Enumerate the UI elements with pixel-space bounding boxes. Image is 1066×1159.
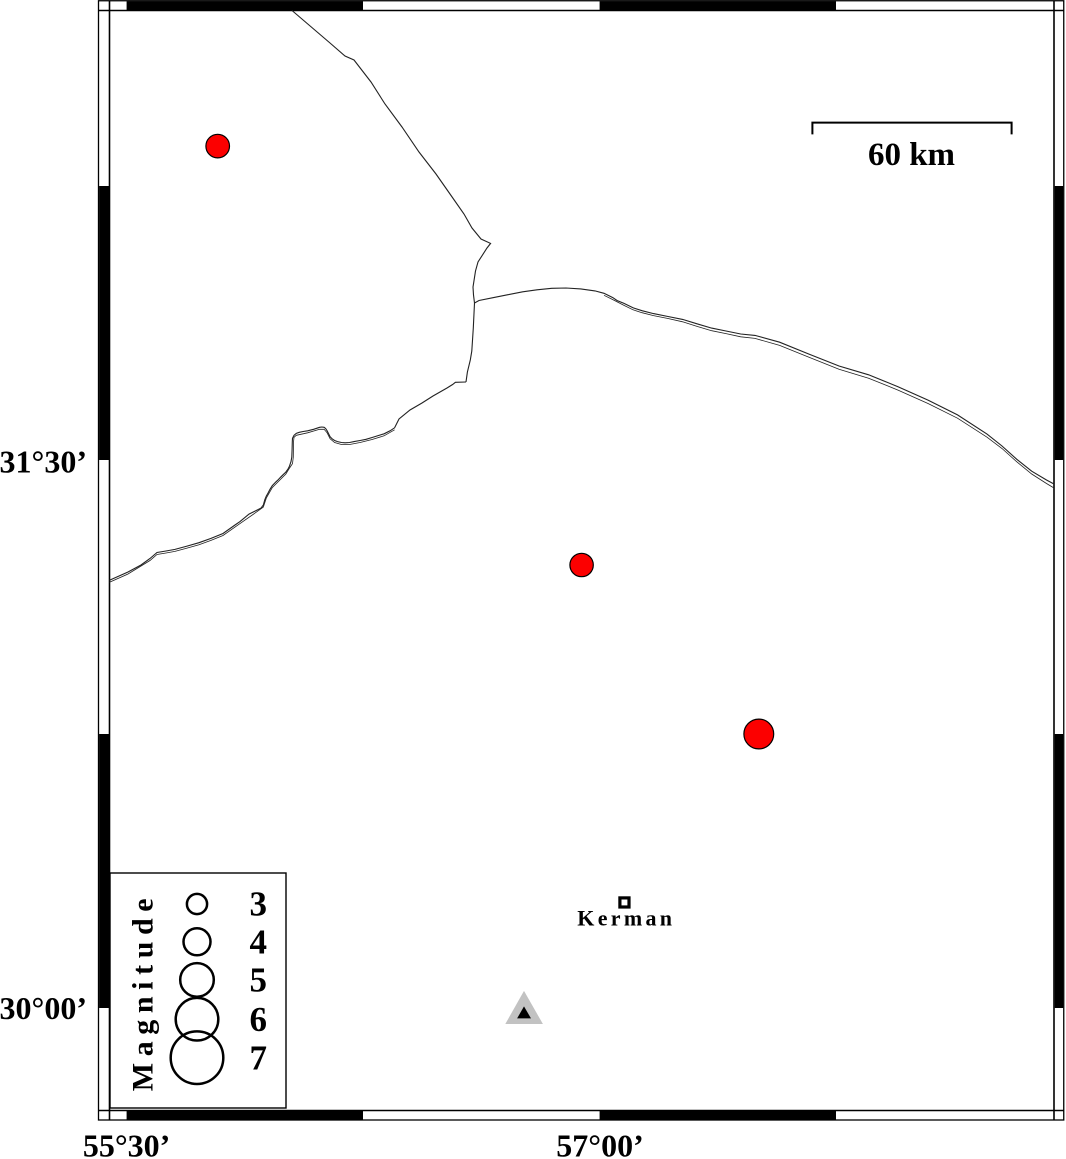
svg-text:5: 5	[250, 961, 268, 1000]
svg-text:31°30’: 31°30’	[0, 444, 87, 480]
svg-text:7: 7	[250, 1038, 268, 1077]
svg-text:30°00’: 30°00’	[0, 990, 87, 1026]
svg-text:Magnitude: Magnitude	[127, 892, 160, 1091]
svg-text:4: 4	[250, 922, 268, 961]
svg-text:Kerman: Kerman	[577, 906, 675, 931]
svg-text:60 km: 60 km	[868, 137, 955, 173]
svg-text:57°00’: 57°00’	[556, 1128, 643, 1159]
svg-text:3: 3	[250, 885, 268, 924]
svg-text:55°30’: 55°30’	[83, 1128, 170, 1159]
svg-text:6: 6	[250, 1000, 268, 1039]
